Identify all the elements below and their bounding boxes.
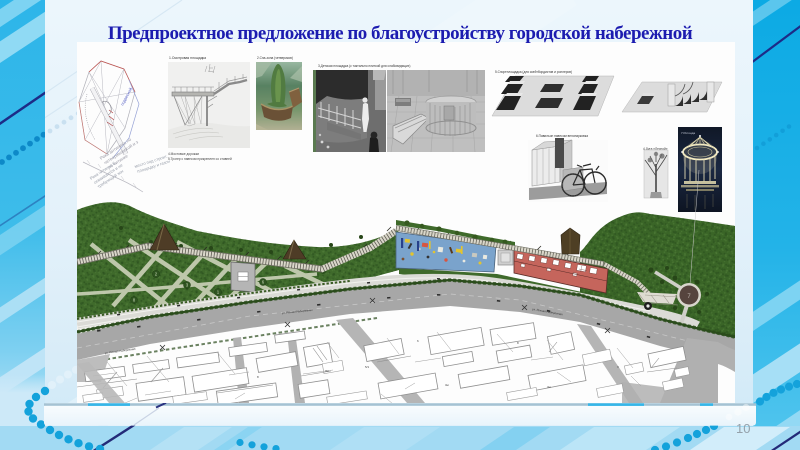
svg-text:3м: 3м bbox=[445, 383, 449, 387]
svg-text:3м: 3м bbox=[325, 369, 329, 373]
svg-text:5.Трогер с навесом прикреплен: 5.Трогер с навесом прикреплен со ставней bbox=[168, 157, 232, 161]
svg-text:2.Спа-зона (четвериков): 2.Спа-зона (четвериков) bbox=[257, 56, 293, 60]
svg-text:3м: 3м bbox=[547, 385, 551, 389]
svg-text:1.Смотровая площадка: 1.Смотровая площадка bbox=[169, 56, 206, 60]
svg-text:3.Детская площадка (с тактильн: 3.Детская площадка (с тактильно плиткой … bbox=[318, 64, 410, 68]
svg-text:5.Спортплощадка (для скейтборд: 5.Спортплощадка (для скейтбордистов и ро… bbox=[495, 70, 572, 74]
svg-text:4.Мостовые дорожки: 4.Мостовые дорожки bbox=[168, 152, 199, 156]
svg-text:X: X bbox=[617, 365, 619, 369]
svg-text:7.Ротонда: 7.Ротонда bbox=[681, 131, 695, 135]
svg-text:5/1: 5/1 bbox=[365, 365, 370, 369]
svg-text:6.Павильон навесом велопарко: 6.Павильон навесом велопарковка bbox=[536, 134, 588, 138]
